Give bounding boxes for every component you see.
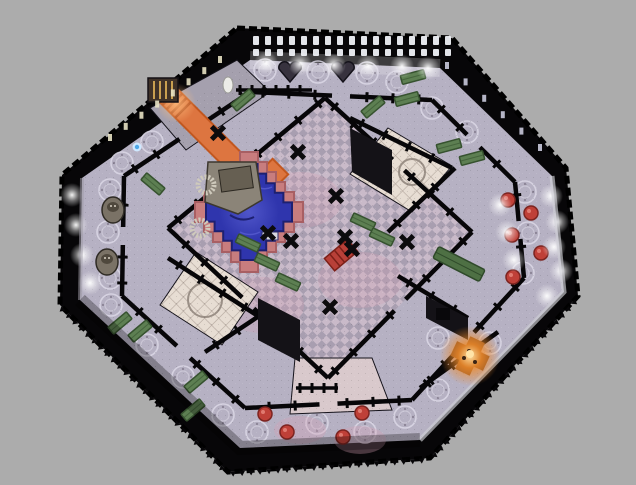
wall-tooth (293, 467, 299, 472)
red-table-highlight (283, 428, 287, 432)
red-table (524, 206, 538, 220)
red-table (355, 406, 369, 420)
side-wall-window (464, 78, 468, 85)
campfire-log (462, 356, 466, 360)
wall-tooth (266, 469, 272, 474)
owl-statue-head (101, 254, 113, 264)
top-wall-window (385, 36, 391, 45)
top-wall-window (385, 49, 391, 56)
wall-line (123, 176, 124, 227)
owl-statue-eye (108, 257, 110, 259)
wall-light-glow (356, 54, 380, 78)
owl-statue (102, 197, 124, 223)
wall-tooth (374, 461, 380, 466)
top-wall-window (313, 49, 319, 56)
top-wall-window (433, 36, 439, 45)
side-wall-window (171, 89, 175, 96)
wall-tooth (410, 459, 416, 464)
red-table-highlight (527, 209, 531, 213)
wall-stud (516, 246, 526, 247)
owl-statue-eye (104, 257, 106, 259)
top-wall-window (421, 36, 427, 45)
wall-tooth (302, 466, 308, 471)
red-table (258, 407, 272, 421)
owl-statue-head (107, 202, 119, 212)
side-wall-window (445, 62, 449, 69)
campfire-log (473, 360, 477, 364)
red-table-highlight (509, 273, 513, 277)
top-wall-window (277, 36, 283, 45)
red-table-top (258, 407, 272, 421)
side-wall-window (202, 67, 206, 74)
red-table (506, 270, 520, 284)
side-wall-window (108, 134, 112, 141)
wall-tooth (401, 460, 407, 465)
wall-light-glow (390, 54, 414, 78)
red-table-top (524, 206, 538, 220)
wall-light-glow (254, 51, 278, 75)
owl-statue (96, 249, 118, 275)
top-wall-window (301, 36, 307, 45)
top-wall-window (445, 49, 451, 56)
campfire-flame (466, 350, 474, 358)
top-wall-window (313, 36, 319, 45)
top-wall-window (409, 49, 415, 56)
side-wall-window (187, 78, 191, 85)
wall-tooth (257, 470, 263, 475)
owl-statue-eye (114, 205, 116, 207)
side-wall-window (124, 123, 128, 130)
wall-tooth (338, 464, 344, 469)
top-wall-window (325, 36, 331, 45)
dark-table (436, 308, 450, 320)
side-wall-window (501, 111, 505, 118)
pool-platform-structure (219, 166, 254, 192)
red-table-highlight (261, 410, 265, 414)
top-wall-window (289, 36, 295, 45)
wall-line (122, 245, 123, 296)
top-wall-window (349, 49, 355, 56)
side-wall-window (482, 95, 486, 102)
top-wall-window (421, 49, 427, 56)
wall-tooth (329, 465, 335, 470)
red-table-top (355, 406, 369, 420)
wall-light-glow (64, 213, 88, 237)
top-wall-window (361, 36, 367, 45)
wall-light-glow (322, 53, 346, 77)
wall-light-glow (495, 220, 519, 244)
top-wall-window (409, 36, 415, 45)
red-table-highlight (537, 249, 541, 253)
campfire (440, 326, 500, 386)
top-wall-window (337, 36, 343, 45)
side-wall-window (218, 56, 222, 63)
red-table-highlight (358, 409, 362, 413)
wall-light-glow (288, 52, 312, 76)
side-wall-window (139, 112, 143, 119)
top-wall-window (349, 36, 355, 45)
top-wall-window (445, 36, 451, 45)
map-viewer-window (0, 0, 636, 485)
red-table-highlight (339, 433, 343, 437)
red-table-top (280, 425, 294, 439)
top-wall-window (397, 36, 403, 45)
side-wall-window (538, 144, 542, 151)
top-wall-window (265, 36, 271, 45)
npc-figure (135, 145, 139, 149)
side-wall-window (155, 101, 159, 108)
map-viewport[interactable] (0, 0, 636, 485)
owl-statue-eye (110, 205, 112, 207)
top-wall-window (277, 49, 283, 56)
red-table (280, 425, 294, 439)
wall-tooth (230, 471, 236, 476)
top-wall-window (373, 49, 379, 56)
top-wall-window (433, 49, 439, 56)
wall-light-glow (502, 248, 526, 272)
wall-light-glow (416, 56, 440, 80)
wall-tooth (365, 462, 371, 467)
wall-light-glow (488, 193, 512, 217)
red-table-top (506, 270, 520, 284)
wall-rim-highlight (80, 178, 82, 300)
top-wall-window (253, 36, 259, 45)
side-wall-window (519, 128, 523, 135)
map-svg (0, 0, 636, 485)
white-statue (223, 77, 233, 93)
top-wall-window (373, 36, 379, 45)
